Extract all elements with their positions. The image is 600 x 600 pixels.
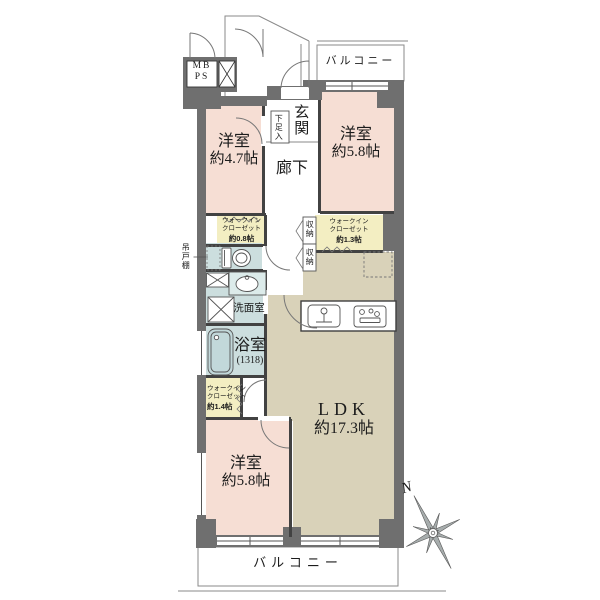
- wic-entry-line2: クローゼット: [217, 225, 266, 233]
- mb-text: MB: [187, 61, 217, 72]
- balcony-top-label: バルコニー: [317, 55, 404, 68]
- entry-porch: [225, 16, 309, 96]
- washbasin-icon: [229, 272, 266, 295]
- bedroom-b-name: 洋室: [318, 126, 394, 144]
- closet-lower-label: 収納: [305, 248, 314, 266]
- wic-entry-line3: 約0.8帖: [217, 234, 266, 244]
- kitchen-sink-icon: [308, 305, 340, 327]
- bedroom-b-label: 洋室 約5.8帖: [318, 126, 394, 162]
- bathroom-name: 浴室: [228, 337, 272, 355]
- wic-entry-label: ウォークイン クローゼット 約0.8帖: [217, 217, 266, 244]
- bedroom-a-label: 洋室 約4.7帖: [204, 133, 264, 169]
- wic-bath-line2: クローゼット: [207, 393, 243, 401]
- floorplan-drawing: [0, 0, 600, 600]
- floorplan: MB PS バルコニー 玄関 下足入 洋室 約4.7帖 廊下 洋室 約5.8帖 …: [0, 0, 600, 600]
- bedroom-c-size: 約5.8帖: [204, 473, 288, 490]
- balcony-bottom-label: バルコニー: [198, 556, 398, 571]
- hallway-label: 廊下: [268, 160, 316, 178]
- bathroom-label: 浴室 (1318): [228, 337, 272, 367]
- toilet-icon: [222, 248, 251, 268]
- hanging-cupboard-label: 吊戸棚: [181, 243, 190, 270]
- bedroom-b-size: 約5.8帖: [318, 144, 394, 161]
- closet-upper-label: 収納: [305, 220, 314, 238]
- bathroom-size: (1318): [228, 355, 272, 367]
- stove-icon: [354, 306, 386, 327]
- bedroom-c-name: 洋室: [204, 455, 288, 473]
- ps-text: PS: [187, 72, 217, 83]
- bedroom-a-size: 約4.7帖: [204, 151, 264, 168]
- wic-bath-label: ウォークイン クローゼット 約1.4帖: [207, 385, 243, 412]
- meter-box-label: MB PS: [187, 61, 217, 84]
- linen-shelf-icon: [207, 273, 229, 287]
- ldk-name: LDK: [294, 399, 394, 420]
- bedroom-c-label: 洋室 約5.8帖: [204, 455, 288, 491]
- shoe-cabinet-label: 下足入: [274, 114, 283, 141]
- entrance-label: 玄関: [291, 104, 308, 136]
- wic-hall-line2: クローゼット: [316, 226, 382, 234]
- washroom-label: 洗面室: [231, 303, 267, 315]
- bedroom-a-name: 洋室: [204, 133, 264, 151]
- wic-bath-line3: 約1.4帖: [207, 402, 243, 412]
- ldk-size: 約17.3帖: [294, 420, 394, 438]
- pipe-shaft-box: [219, 61, 235, 87]
- wic-hall-label: ウォークイン クローゼット 約1.3帖: [316, 218, 382, 245]
- wic-hall-line3: 約1.3帖: [316, 235, 382, 245]
- ldk-label: LDK 約17.3帖: [294, 399, 394, 438]
